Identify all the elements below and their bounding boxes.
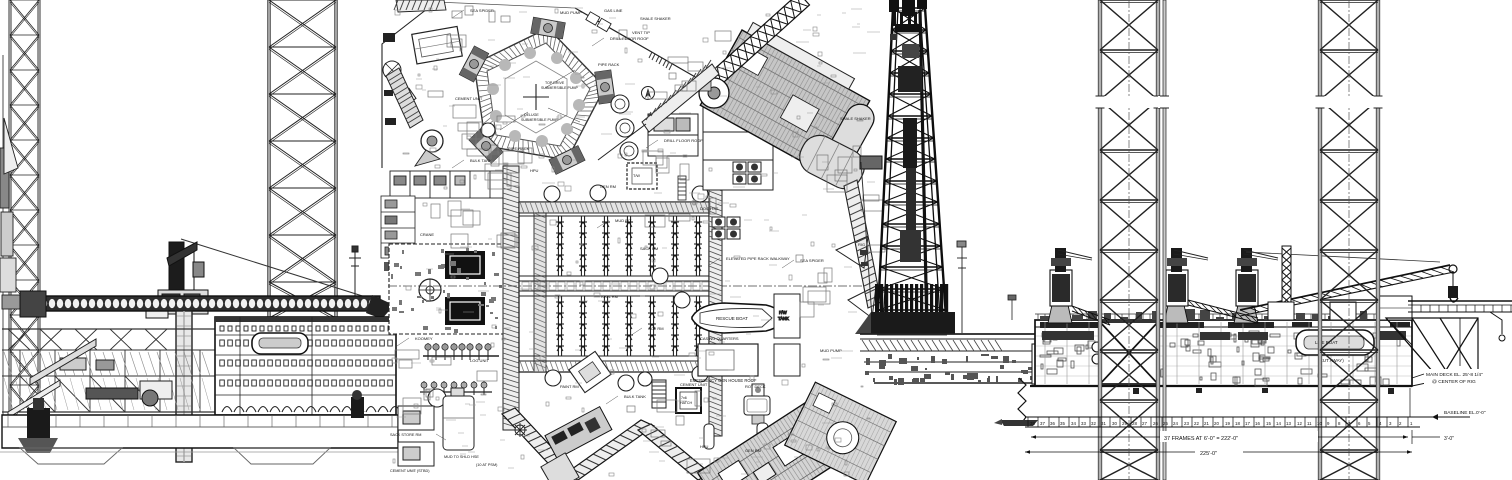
svg-text:38: 38	[1030, 421, 1035, 426]
svg-text:BASELINE EL.0'-0": BASELINE EL.0'-0"	[1444, 410, 1486, 416]
svg-text:MUD TO SHLD HSE: MUD TO SHLD HSE	[444, 455, 479, 459]
svg-text:DRILL FLOOR ROOF: DRILL FLOOR ROOF	[610, 36, 649, 41]
svg-text:32: 32	[1091, 421, 1096, 426]
svg-text:DELUGE: DELUGE	[524, 113, 539, 117]
svg-text:BULK TANK: BULK TANK	[624, 394, 646, 399]
svg-text:SEA SPIDER: SEA SPIDER	[470, 8, 494, 13]
svg-text:T/W: T/W	[633, 174, 640, 178]
svg-text:3'-0": 3'-0"	[1444, 436, 1454, 442]
svg-text:BULK TANK: BULK TANK	[470, 158, 492, 163]
svg-text:27: 27	[1142, 421, 1147, 426]
svg-text:HATCH: HATCH	[680, 401, 693, 405]
svg-text:33: 33	[1081, 421, 1086, 426]
svg-text:TOP DRIVE: TOP DRIVE	[545, 81, 565, 85]
svg-text:PIPE RACK: PIPE RACK	[598, 62, 620, 67]
svg-text:15: 15	[1266, 421, 1271, 426]
svg-text:CO2 RM: CO2 RM	[648, 326, 664, 331]
svg-text:20: 20	[1214, 421, 1219, 426]
svg-text:SUBMERSIBLE PUMP: SUBMERSIBLE PUMP	[521, 118, 559, 122]
svg-text:16: 16	[1255, 421, 1260, 426]
svg-text:CEMENT UNIT: CEMENT UNIT	[680, 382, 708, 387]
svg-text:F/W: F/W	[779, 310, 787, 315]
svg-text:CRANE: CRANE	[420, 232, 434, 237]
svg-text:14: 14	[1276, 421, 1281, 426]
svg-text:28: 28	[1132, 421, 1137, 426]
svg-text:(10 AT PSM): (10 AT PSM)	[476, 463, 498, 467]
svg-text:GEN RM: GEN RM	[600, 184, 616, 189]
svg-text:HPU: HPU	[700, 444, 709, 449]
svg-text:TOOL RM: TOOL RM	[600, 294, 618, 299]
svg-text:12: 12	[1297, 421, 1302, 426]
svg-text:22: 22	[1194, 421, 1199, 426]
svg-text:37 FRAMES AT 6'-0" = 222'-0": 37 FRAMES AT 6'-0" = 222'-0"	[1164, 436, 1238, 442]
svg-text:10: 10	[1317, 421, 1322, 426]
svg-text:HPU: HPU	[530, 168, 539, 173]
svg-text:35: 35	[1060, 421, 1065, 426]
svg-text:25: 25	[1163, 421, 1168, 426]
svg-text:23: 23	[1184, 421, 1189, 426]
svg-text:36: 36	[1050, 421, 1055, 426]
svg-text:GAS LINE: GAS LINE	[604, 8, 623, 13]
svg-text:21: 21	[1204, 421, 1209, 426]
svg-text:24: 24	[1173, 421, 1178, 426]
svg-text:DRILL FLOOR ROOF: DRILL FLOOR ROOF	[664, 138, 703, 143]
svg-text:MUD PIT: MUD PIT	[615, 218, 632, 223]
svg-text:30: 30	[1112, 421, 1117, 426]
svg-text:26: 26	[1153, 421, 1158, 426]
svg-text:MUD PUMP: MUD PUMP	[820, 348, 842, 353]
svg-text:17: 17	[1245, 421, 1250, 426]
svg-text:SEA SPIDER: SEA SPIDER	[800, 258, 824, 263]
svg-text:RESCUE BOAT: RESCUE BOAT	[716, 316, 748, 321]
svg-text:@ CENTER OF RIG: @ CENTER OF RIG	[1432, 379, 1476, 385]
svg-text:SACK STORE RM: SACK STORE RM	[390, 433, 421, 437]
svg-text:TANK: TANK	[778, 316, 789, 321]
svg-text:31: 31	[1101, 421, 1106, 426]
svg-text:PIPE RACK: PIPE RACK	[508, 146, 530, 151]
svg-text:SHALE SHAKER: SHALE SHAKER	[840, 116, 871, 121]
svg-text:29: 29	[1122, 421, 1127, 426]
svg-text:19: 19	[1225, 421, 1230, 426]
svg-text:18: 18	[1235, 421, 1240, 426]
svg-text:37: 37	[1040, 421, 1045, 426]
svg-text:11: 11	[1307, 421, 1312, 426]
svg-text:RIG: RIG	[858, 242, 865, 247]
svg-text:KOOMEY: KOOMEY	[415, 336, 433, 341]
svg-text:MUD PUMP: MUD PUMP	[560, 10, 582, 15]
svg-text:MAIN DECK EL. 25'-8 1/4": MAIN DECK EL. 25'-8 1/4"	[1426, 372, 1483, 378]
svg-text:SACK RM: SACK RM	[640, 246, 658, 251]
svg-text:GEN RM: GEN RM	[745, 448, 761, 453]
svg-text:ELEVATED PIPE RACK WALKWAY: ELEVATED PIPE RACK WALKWAY	[726, 256, 790, 261]
svg-text:SUBMERSIBLE PUMP: SUBMERSIBLE PUMP	[541, 86, 579, 90]
svg-text:34: 34	[1071, 421, 1076, 426]
svg-text:SHALE SHAKER: SHALE SHAKER	[640, 16, 671, 21]
svg-text:PAINT RM: PAINT RM	[560, 384, 579, 389]
svg-text:13: 13	[1286, 421, 1291, 426]
svg-text:LOG UNIT: LOG UNIT	[470, 358, 489, 363]
svg-text:VENT TIP: VENT TIP	[632, 30, 650, 35]
svg-text:CASING QUARTERS: CASING QUARTERS	[700, 336, 739, 341]
svg-text:7x6: 7x6	[681, 396, 687, 400]
svg-text:CEMENT UNIT: CEMENT UNIT	[455, 96, 483, 101]
svg-text:225'-0": 225'-0"	[1200, 451, 1217, 457]
svg-text:ROT DECK: ROT DECK	[745, 384, 766, 389]
